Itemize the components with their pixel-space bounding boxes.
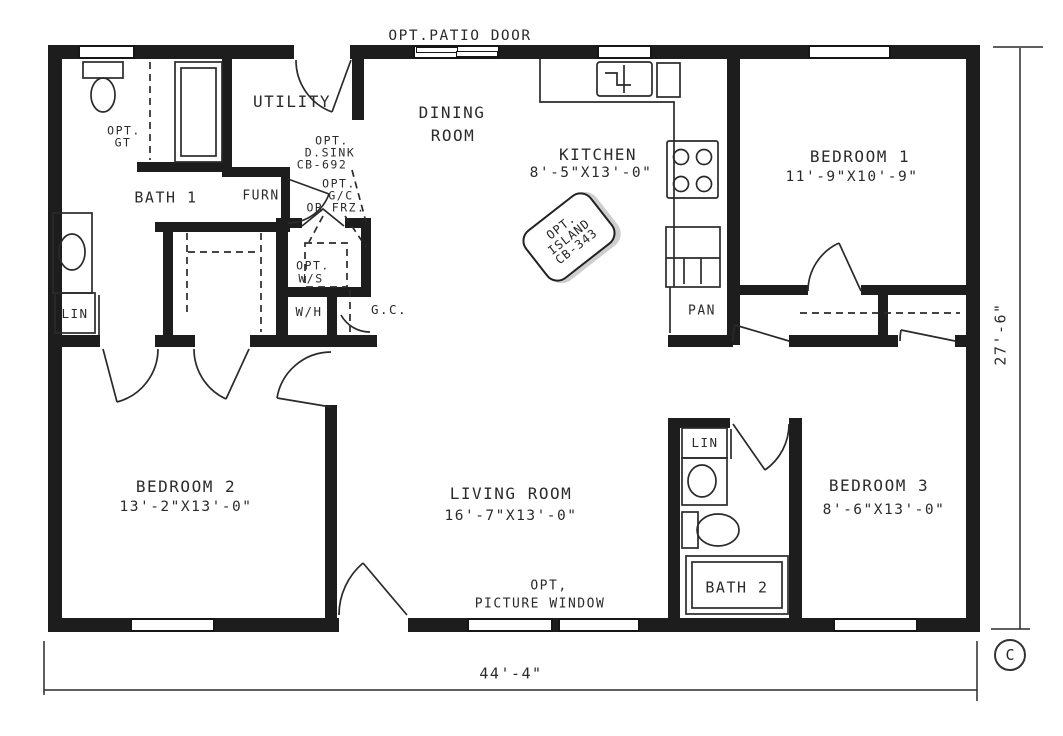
floor-plan: OPT. ISLAND CB-343 OPT.PATIO DOOR DINING…: [0, 0, 1063, 736]
door-gc-closet: [341, 315, 370, 332]
toilet-1-tank: [83, 62, 123, 78]
bathtub-1-inner: [181, 68, 216, 156]
label-linen-hall: LIN: [61, 308, 88, 321]
label-bedroom2-dims: 13'-2"X13'-0": [120, 500, 253, 515]
label-utility: UTILITY: [253, 94, 331, 110]
label-bath2: BATH 2: [705, 581, 768, 596]
door-bedroom3: [900, 330, 955, 341]
door-hall-a: [103, 349, 158, 402]
label-bedroom1-dims: 11'-9"X10'-9": [786, 170, 919, 185]
label-living-room-dims: 16'-7"X13'-0": [445, 509, 578, 524]
patio-door-panel: [456, 51, 498, 57]
bathtub-1: [175, 62, 222, 162]
dim-overall-width: 44'-4": [479, 667, 542, 682]
label-furnace: FURN: [242, 190, 279, 203]
sink-2: [688, 465, 716, 497]
label-bath1: BATH 1: [134, 191, 197, 206]
label-opt-ws-2: W/S: [298, 273, 323, 285]
window-bath1: [78, 45, 135, 59]
label-pantry: PAN: [688, 305, 716, 318]
label-bedroom2: BEDROOM 2: [136, 479, 236, 495]
burner-icon: [697, 150, 712, 165]
closet-rod-dash: [187, 233, 261, 332]
label-kitchen: KITCHEN: [559, 147, 637, 163]
sink-1: [59, 234, 85, 270]
door-hall-b: [194, 349, 249, 399]
label-opt-picture-window: OPT,: [530, 580, 567, 593]
patio-door-panel: [416, 47, 458, 53]
label-water-heater: W/H: [295, 306, 322, 319]
copyright-letter: C: [1005, 646, 1014, 664]
label-opt-patio-door: OPT.PATIO DOOR: [388, 29, 531, 44]
door-bedroom2: [277, 352, 331, 407]
label-opt-gt-2: GT: [115, 137, 132, 149]
label-bedroom1: BEDROOM 1: [810, 149, 910, 165]
burner-icon: [674, 177, 689, 192]
label-linen-bath2: LIN: [691, 437, 718, 450]
window-bedroom2: [130, 618, 215, 632]
toilet-2-bowl: [697, 514, 739, 546]
label-picture-window: PICTURE WINDOW: [475, 598, 606, 611]
label-opt-dsink-3: CB-692: [297, 159, 348, 171]
dishwasher: [657, 63, 680, 97]
label-living-room: LIVING ROOM: [450, 486, 572, 502]
label-opt-gc-3: OR FRZ.: [307, 202, 366, 214]
door-bedroom1-closet: [808, 243, 861, 291]
kitchen-sink-divider: [605, 65, 631, 93]
window-kitchen: [597, 45, 652, 59]
burner-icon: [697, 177, 712, 192]
door-bath2: [733, 424, 789, 470]
label-kitchen-dims: 8'-5"X13'-0": [530, 166, 653, 181]
label-bedroom3-dims: 8'-6"X13'-0": [823, 503, 946, 518]
label-bedroom3: BEDROOM 3: [829, 478, 929, 494]
dim-overall-depth: 27'-6": [994, 302, 1009, 365]
copyright-icon: C: [994, 639, 1026, 671]
label-dining-room: ROOM: [431, 128, 476, 144]
toilet-2-tank: [682, 512, 698, 548]
label-opt-ws: OPT.: [296, 260, 330, 272]
doorway-front: [339, 618, 408, 632]
window-bedroom1: [808, 45, 891, 59]
label-dining: DINING: [419, 105, 486, 121]
door-front: [339, 563, 407, 615]
burner-icon: [674, 150, 689, 165]
doorway-utility: [294, 45, 350, 59]
label-gc-closet: G.C.: [371, 304, 407, 317]
picture-window-2: [558, 618, 640, 632]
door-hall-passage: [733, 325, 789, 341]
window-bedroom3: [833, 618, 918, 632]
picture-window-1: [467, 618, 553, 632]
toilet-1-bowl: [91, 78, 115, 112]
